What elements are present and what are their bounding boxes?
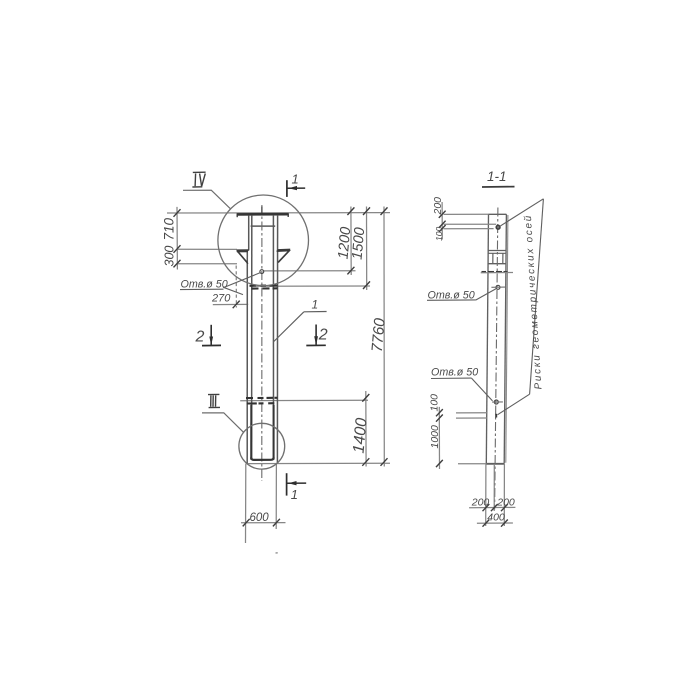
svg-text:1500: 1500 — [350, 227, 369, 261]
svg-text:600: 600 — [250, 512, 270, 524]
svg-text:270: 270 — [211, 293, 231, 305]
svg-text:Отв.ø 50: Отв.ø 50 — [431, 367, 478, 379]
svg-text:2: 2 — [318, 327, 328, 344]
svg-text:300: 300 — [163, 246, 177, 267]
svg-text:1-1: 1-1 — [487, 169, 507, 184]
svg-text:1400: 1400 — [351, 417, 371, 454]
svg-text:1: 1 — [292, 172, 299, 187]
svg-text:200: 200 — [432, 197, 444, 216]
svg-text:710: 710 — [162, 217, 177, 240]
svg-text:400: 400 — [487, 512, 505, 524]
svg-text:1000: 1000 — [429, 425, 441, 449]
svg-text:200: 200 — [471, 497, 490, 509]
svg-text:1: 1 — [312, 298, 319, 312]
svg-text:100: 100 — [434, 227, 444, 241]
svg-text:1: 1 — [291, 487, 298, 502]
svg-text:100: 100 — [429, 394, 441, 412]
svg-text:7760: 7760 — [369, 317, 389, 353]
svg-text:200: 200 — [496, 497, 515, 509]
svg-text:2: 2 — [195, 328, 205, 345]
